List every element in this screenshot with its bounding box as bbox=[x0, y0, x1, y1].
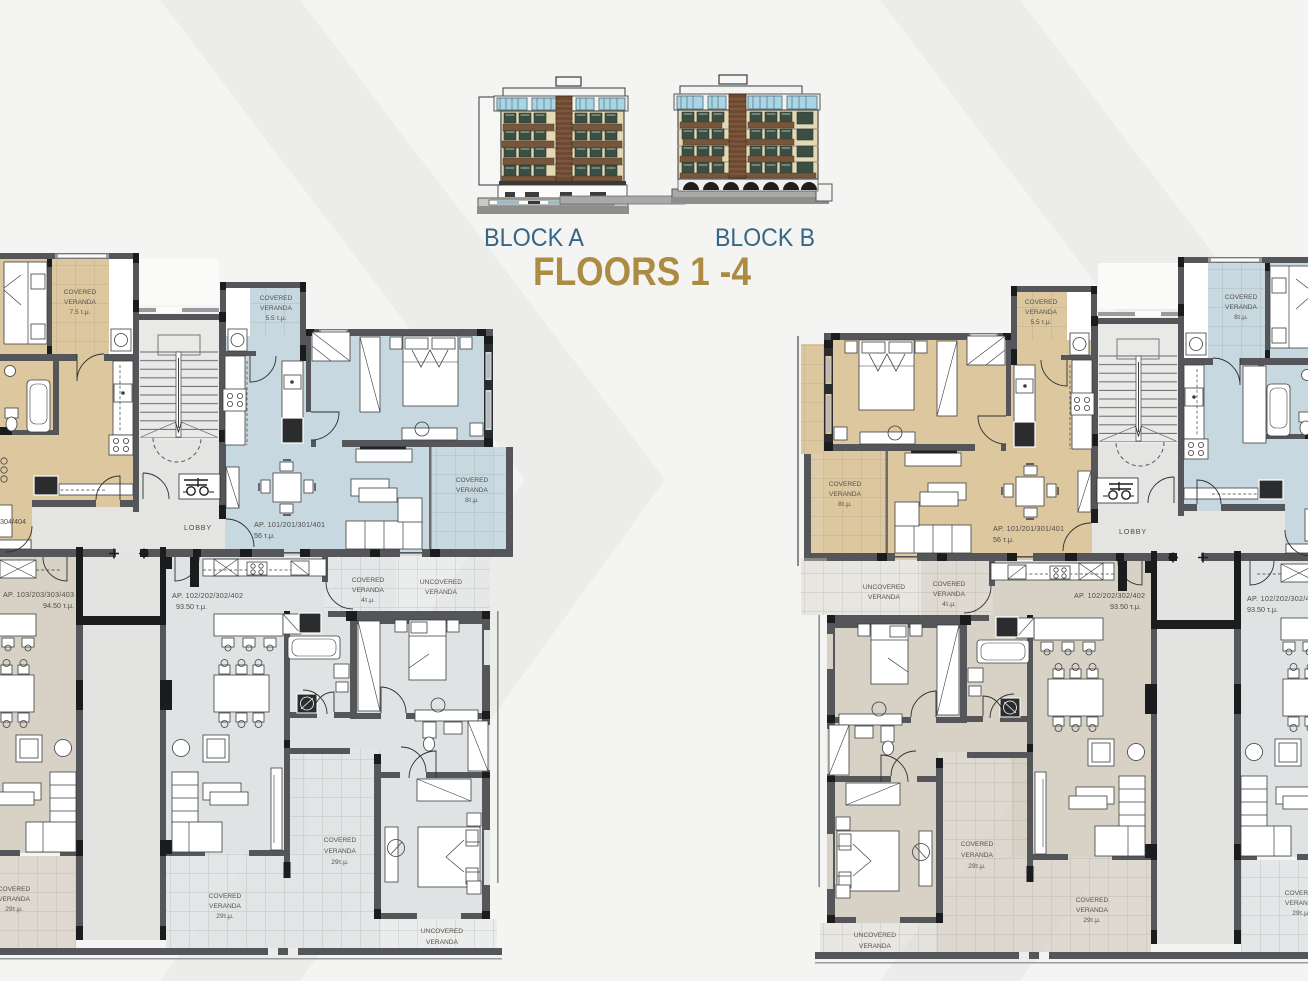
svg-text:29τ.μ.: 29τ.μ. bbox=[1292, 910, 1308, 917]
svg-text:UNCOVERED: UNCOVERED bbox=[421, 928, 463, 935]
svg-text:AP. 103/203/303/403: AP. 103/203/303/403 bbox=[3, 590, 74, 599]
svg-text:8τ.μ.: 8τ.μ. bbox=[1234, 314, 1248, 321]
svg-text:BLOCK A: BLOCK A bbox=[484, 224, 584, 252]
svg-text:COVERED: COVERED bbox=[1025, 299, 1058, 306]
svg-text:COVERED: COVERED bbox=[1225, 294, 1258, 301]
svg-text:AP. 101/201/301/401: AP. 101/201/301/401 bbox=[993, 524, 1064, 533]
svg-text:COVERED: COVERED bbox=[260, 295, 293, 302]
svg-text:VERANDA: VERANDA bbox=[426, 939, 458, 946]
svg-text:304/404: 304/404 bbox=[0, 517, 26, 526]
svg-text:COVERED: COVERED bbox=[1285, 890, 1308, 897]
svg-text:AP. 101/201/301/401: AP. 101/201/301/401 bbox=[254, 520, 325, 529]
svg-text:UNCOVERED: UNCOVERED bbox=[854, 932, 896, 939]
svg-text:94.50 τ.μ.: 94.50 τ.μ. bbox=[43, 601, 74, 610]
svg-text:COVERED: COVERED bbox=[829, 481, 862, 488]
svg-text:VERANDA: VERANDA bbox=[209, 903, 241, 910]
svg-text:LOBBY: LOBBY bbox=[184, 523, 212, 532]
svg-text:AP. 102/202/302/402: AP. 102/202/302/402 bbox=[1247, 594, 1308, 603]
svg-text:8τ.μ.: 8τ.μ. bbox=[465, 497, 479, 504]
svg-text:VERANDA: VERANDA bbox=[0, 896, 31, 903]
svg-text:VERANDA: VERANDA bbox=[324, 848, 356, 855]
svg-text:VERANDA: VERANDA bbox=[961, 852, 993, 859]
svg-text:VERANDA: VERANDA bbox=[859, 943, 891, 950]
svg-text:8τ.μ.: 8τ.μ. bbox=[838, 501, 852, 508]
svg-text:VERANDA: VERANDA bbox=[868, 594, 900, 601]
svg-text:93.50 τ.μ.: 93.50 τ.μ. bbox=[1110, 602, 1141, 611]
svg-text:COVERED: COVERED bbox=[0, 886, 31, 893]
svg-text:VERANDA: VERANDA bbox=[352, 587, 384, 594]
svg-text:VERANDA: VERANDA bbox=[1285, 900, 1308, 907]
svg-text:COVERED: COVERED bbox=[961, 841, 994, 848]
svg-text:5.5 τ.μ.: 5.5 τ.μ. bbox=[1030, 319, 1051, 326]
svg-text:4τ.μ.: 4τ.μ. bbox=[361, 597, 375, 604]
svg-text:UNCOVERED: UNCOVERED bbox=[863, 584, 905, 591]
svg-text:COVERED: COVERED bbox=[1076, 897, 1109, 904]
svg-text:COVERED: COVERED bbox=[209, 893, 242, 900]
svg-text:AP. 102/202/302/402: AP. 102/202/302/402 bbox=[1074, 591, 1145, 600]
svg-text:VERANDA: VERANDA bbox=[1076, 907, 1108, 914]
svg-text:FLOORS 1 -4: FLOORS 1 -4 bbox=[533, 250, 752, 294]
svg-text:BLOCK B: BLOCK B bbox=[715, 224, 815, 252]
svg-text:56 τ.μ.: 56 τ.μ. bbox=[993, 535, 1014, 544]
svg-text:COVERED: COVERED bbox=[352, 577, 385, 584]
svg-text:VERANDA: VERANDA bbox=[933, 591, 965, 598]
svg-text:VERANDA: VERANDA bbox=[829, 491, 861, 498]
svg-text:4τ.μ.: 4τ.μ. bbox=[942, 601, 956, 608]
svg-text:93.50 τ.μ.: 93.50 τ.μ. bbox=[1247, 605, 1278, 614]
svg-text:VERANDA: VERANDA bbox=[425, 589, 457, 596]
svg-text:29τ.μ.: 29τ.μ. bbox=[216, 913, 234, 920]
svg-text:UNCOVERED: UNCOVERED bbox=[420, 579, 462, 586]
svg-text:VERANDA: VERANDA bbox=[1225, 304, 1257, 311]
svg-text:93.50 τ.μ.: 93.50 τ.μ. bbox=[176, 602, 207, 611]
svg-text:29τ.μ.: 29τ.μ. bbox=[5, 906, 23, 913]
svg-text:COVERED: COVERED bbox=[933, 581, 966, 588]
svg-text:VERANDA: VERANDA bbox=[1025, 309, 1057, 316]
svg-text:AP. 102/202/302/402: AP. 102/202/302/402 bbox=[172, 591, 243, 600]
svg-text:COVERED: COVERED bbox=[64, 289, 97, 296]
svg-text:7.5 τ.μ.: 7.5 τ.μ. bbox=[69, 309, 90, 316]
svg-text:COVERED: COVERED bbox=[456, 477, 489, 484]
svg-text:29τ.μ.: 29τ.μ. bbox=[331, 859, 349, 866]
svg-text:5.5 τ.μ.: 5.5 τ.μ. bbox=[265, 315, 286, 322]
svg-text:VERANDA: VERANDA bbox=[64, 299, 96, 306]
svg-text:VERANDA: VERANDA bbox=[456, 487, 488, 494]
svg-text:29τ.μ.: 29τ.μ. bbox=[968, 863, 986, 870]
svg-text:VERANDA: VERANDA bbox=[260, 305, 292, 312]
svg-text:LOBBY: LOBBY bbox=[1119, 527, 1147, 536]
svg-text:56 τ.μ.: 56 τ.μ. bbox=[254, 531, 275, 540]
svg-text:COVERED: COVERED bbox=[324, 837, 357, 844]
svg-text:29τ.μ.: 29τ.μ. bbox=[1083, 917, 1101, 924]
